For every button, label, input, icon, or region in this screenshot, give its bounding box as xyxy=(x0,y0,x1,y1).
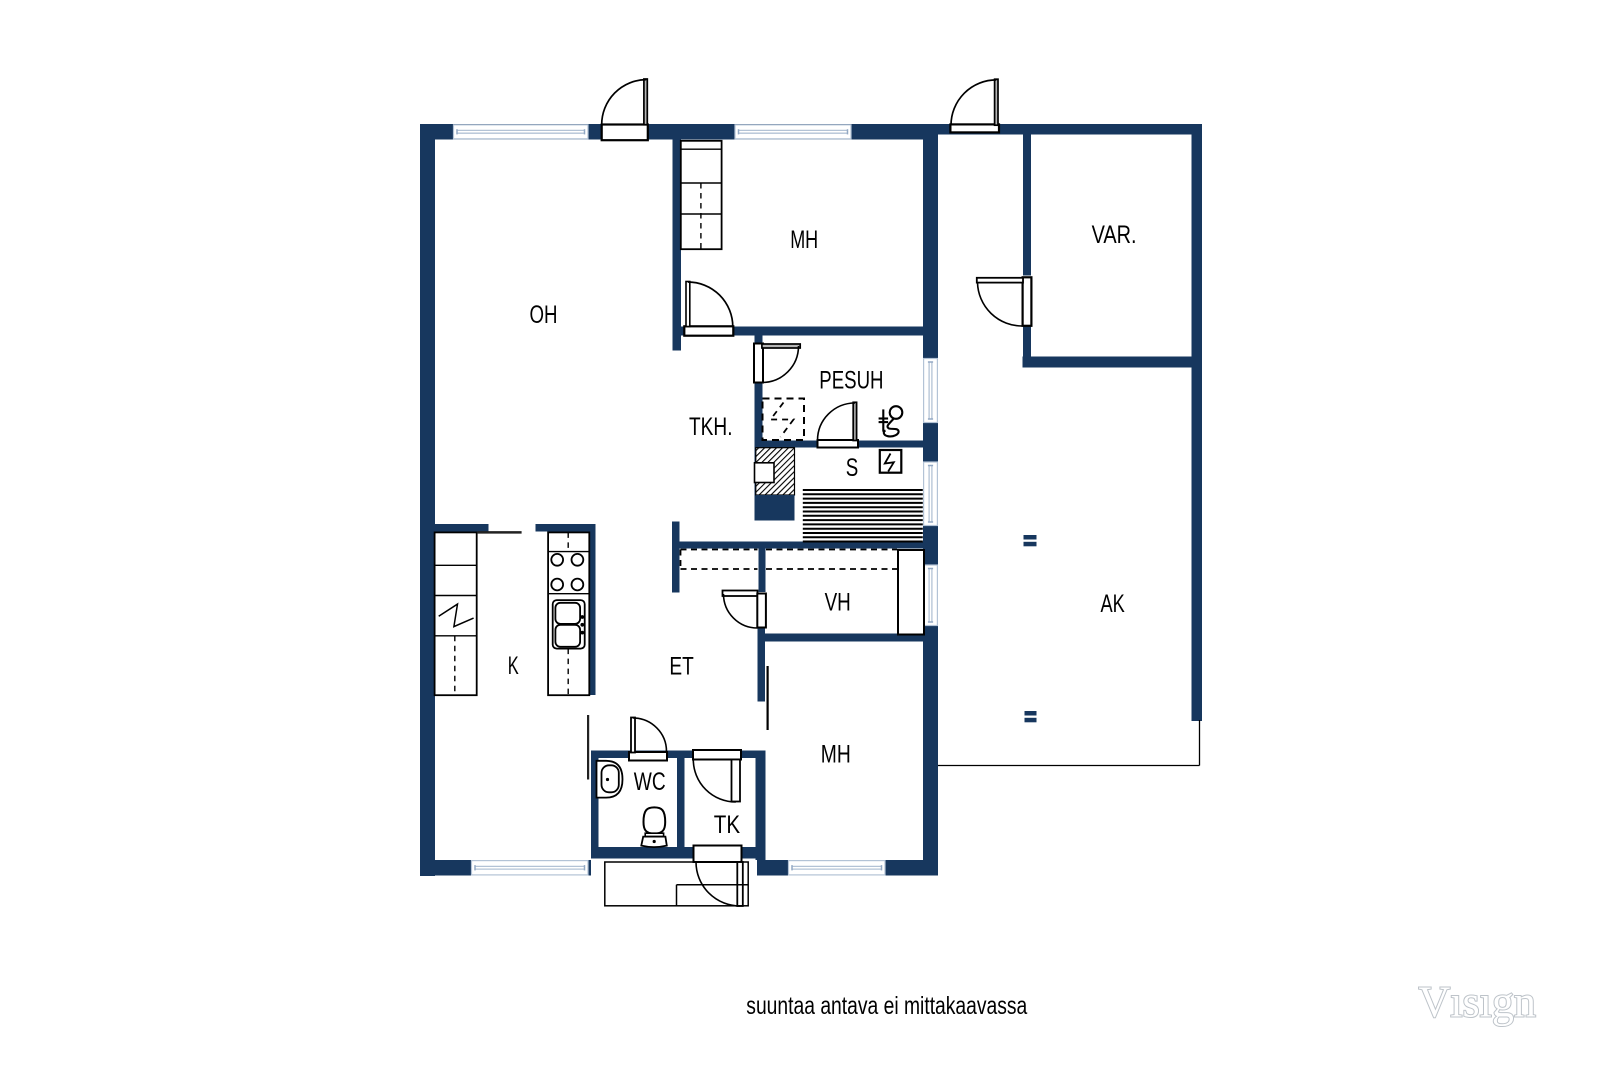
svg-text:MH: MH xyxy=(790,226,818,254)
svg-text:suuntaa antava ei mittakaavass: suuntaa antava ei mittakaavassa xyxy=(746,992,1027,1020)
svg-text:Vısıgn: Vısıgn xyxy=(1419,978,1536,1027)
svg-text:OH: OH xyxy=(530,301,558,329)
svg-text:PESUH: PESUH xyxy=(819,367,883,395)
svg-text:ET: ET xyxy=(669,652,693,680)
svg-text:VH: VH xyxy=(825,589,851,617)
svg-text:MH: MH xyxy=(821,741,851,769)
svg-text:WC: WC xyxy=(634,768,666,796)
svg-text:AK: AK xyxy=(1101,590,1126,618)
svg-text:TKH.: TKH. xyxy=(689,413,733,441)
svg-text:K: K xyxy=(508,652,519,680)
svg-text:VAR.: VAR. xyxy=(1092,221,1137,249)
svg-text:TK: TK xyxy=(714,811,741,839)
svg-text:S: S xyxy=(846,454,859,482)
